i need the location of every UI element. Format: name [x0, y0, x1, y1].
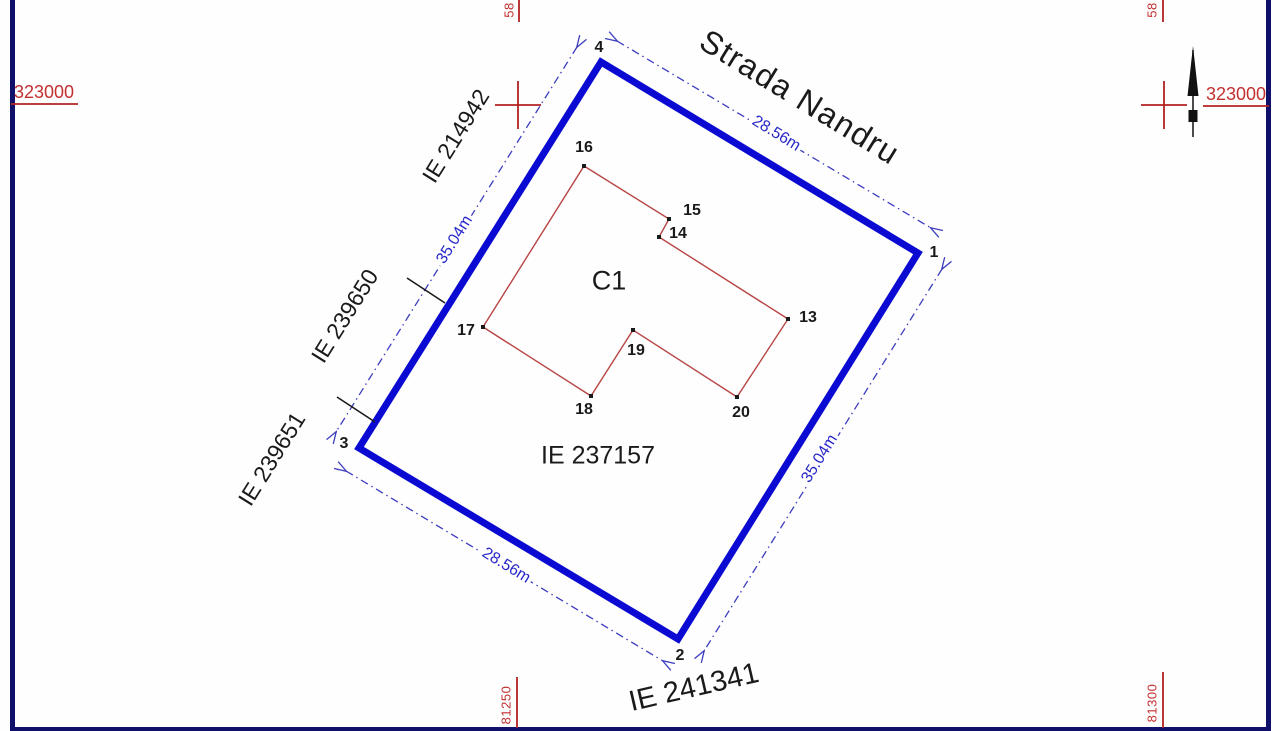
corner-label-3: 3: [340, 436, 349, 452]
vertex-dot-14: [657, 235, 661, 239]
tick-west-upper: [407, 278, 445, 303]
building-vertex-dots: [481, 164, 790, 399]
grid-northing-label-left: 323000: [14, 83, 74, 101]
vertex-dot-16: [582, 164, 586, 168]
plan-drawing: [0, 0, 1280, 731]
grid-easting-label-top-right: 58: [1146, 2, 1159, 17]
building-point-label-18: 18: [575, 402, 593, 418]
building-label: C1: [592, 268, 627, 295]
building-outline: [483, 166, 788, 397]
building-point-label-15: 15: [683, 203, 701, 219]
building-point-label-14: 14: [669, 226, 687, 242]
tick-west-lower: [337, 397, 375, 422]
vertex-dot-15: [667, 217, 671, 221]
building-point-label-16: 16: [575, 140, 593, 156]
parcel-id-label: IE 237157: [541, 444, 655, 469]
north-arrow-icon: [1188, 46, 1199, 137]
corner-label-1: 1: [930, 245, 939, 261]
building-point-label-13: 13: [799, 310, 817, 326]
building-point-label-17: 17: [457, 323, 475, 339]
vertex-dot-18: [589, 394, 593, 398]
building-point-label-20: 20: [732, 405, 750, 421]
building-point-label-19: 19: [627, 343, 645, 359]
corner-label-4: 4: [595, 40, 604, 56]
vertex-dot-19: [631, 328, 635, 332]
grid-northing-label-right: 323000: [1206, 85, 1266, 103]
grid-easting-label-bottom-left: 81250: [500, 686, 513, 725]
corner-label-2: 2: [676, 648, 685, 664]
grid-easting-label-bottom-right: 81300: [1146, 684, 1159, 723]
vertex-dot-13: [786, 317, 790, 321]
grid-easting-label-top-left: 58: [503, 2, 516, 17]
vertex-dot-20: [735, 395, 739, 399]
cadastral-plan-page: { "street": { "label": "Strada Nandru" }…: [0, 0, 1280, 731]
vertex-dot-17: [481, 325, 485, 329]
